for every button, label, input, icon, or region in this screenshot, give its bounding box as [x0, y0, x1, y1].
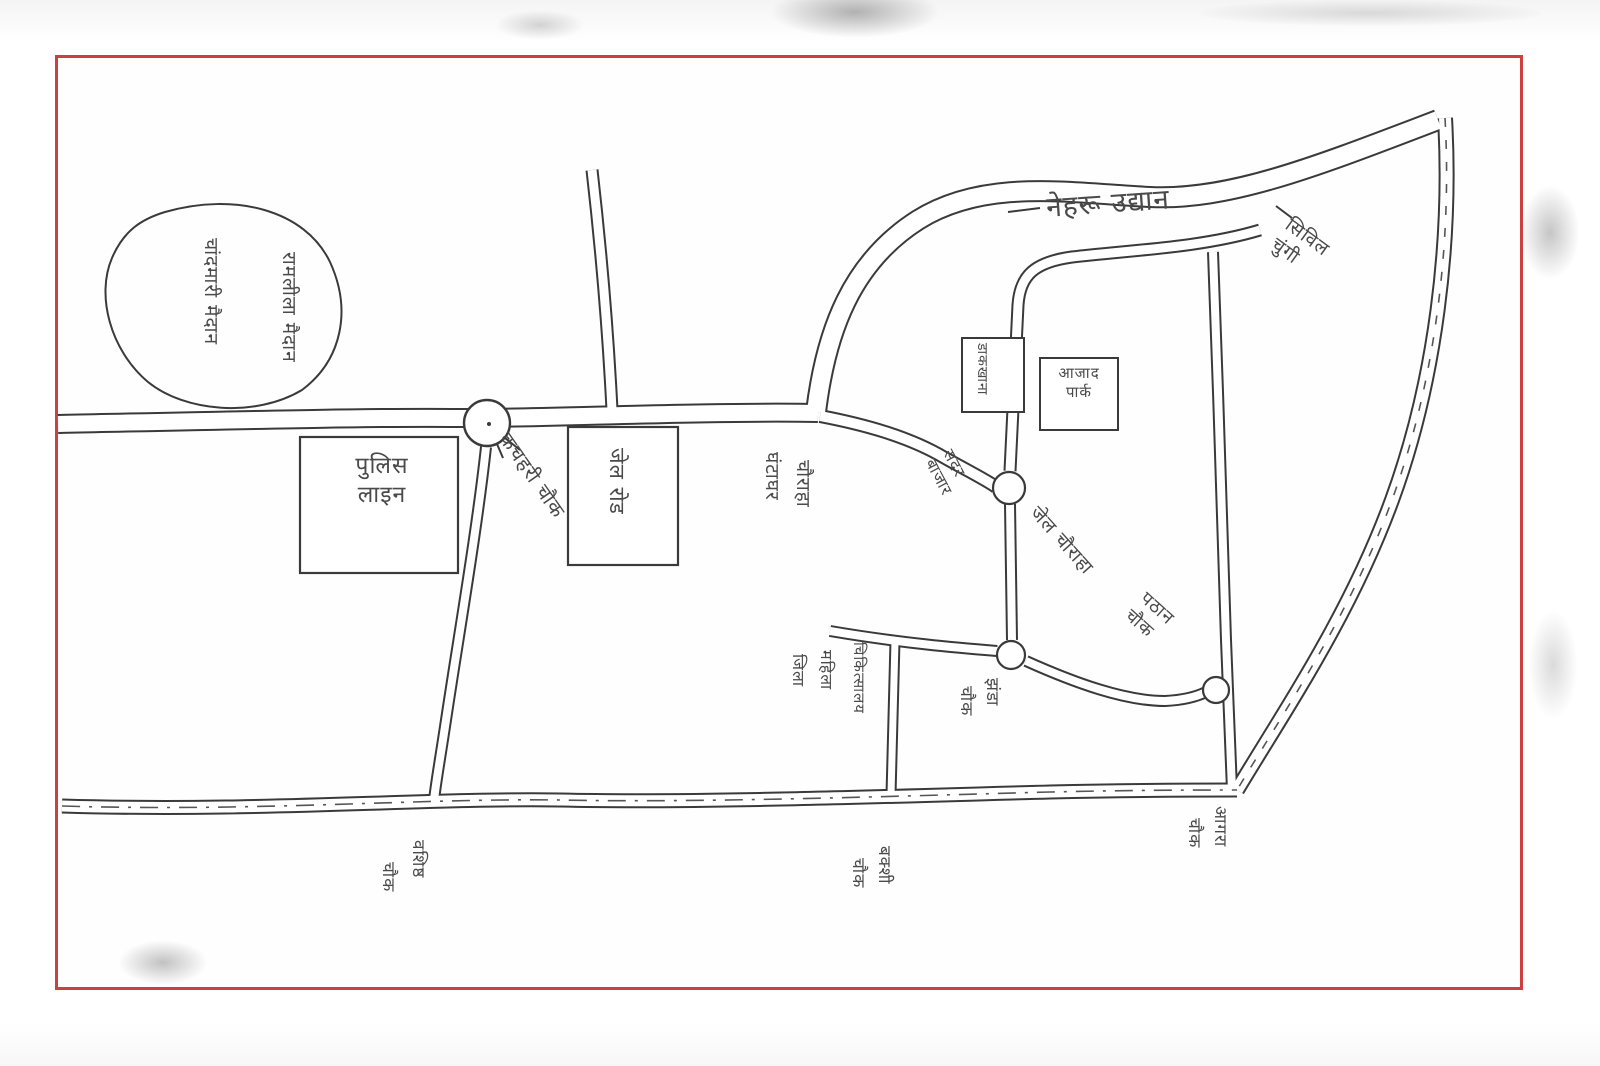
building-boxes	[300, 338, 1118, 573]
chowk-tick-1	[505, 438, 520, 450]
bypass-road	[1237, 118, 1447, 790]
jhanda-chowk-circle	[997, 641, 1025, 669]
pathan-chowk-circle	[1203, 677, 1229, 703]
maidan-blob-outline	[105, 204, 341, 408]
chowk-tick-2	[497, 444, 503, 458]
sketch-map-drawing	[0, 0, 1600, 1066]
kachahari-chowk-dot	[487, 422, 491, 426]
kachahari-chowk-circle	[464, 400, 510, 446]
dakkhana-box	[962, 338, 1024, 412]
road-fills	[58, 118, 1447, 808]
scanned-page: चांदमारी मैदानरामलीला मैदानपुलिस लाइनकचह…	[0, 0, 1600, 1066]
jail-chauraha-circle	[993, 472, 1025, 504]
road-casings	[58, 118, 1447, 808]
azad-park-box	[1040, 358, 1118, 430]
police-line-box	[300, 437, 458, 573]
label-dash-mark	[1008, 208, 1040, 212]
chungi-pointer-mark	[1276, 206, 1292, 218]
jail-road-box	[568, 427, 678, 565]
